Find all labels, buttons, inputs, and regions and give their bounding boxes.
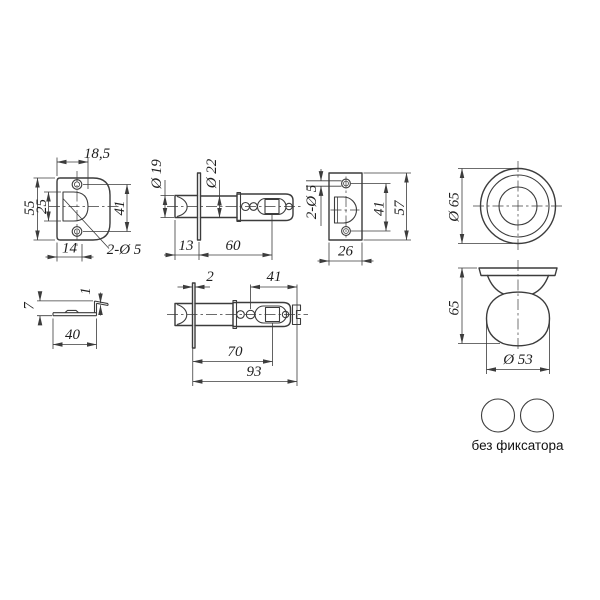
centerlines <box>49 171 119 249</box>
dim-spindle-distance: 70 <box>228 344 244 360</box>
plate-profile <box>53 301 108 316</box>
knob-symbol-left <box>482 399 515 432</box>
dim-plate-thickness: 2 <box>206 269 214 285</box>
faceplate-edge <box>193 283 196 348</box>
dim-barrel-diameter: Ø 22 <box>204 158 220 189</box>
extension-lines <box>458 169 513 244</box>
dim-hole-spacing: 41 <box>112 201 128 216</box>
faceplate-edge <box>198 173 201 240</box>
latch-short-view: Ø 19 Ø 22 13 60 <box>149 158 301 260</box>
dim-lip-thickness: 1 <box>78 287 94 295</box>
variant-note: без фиксатора <box>472 399 564 453</box>
dim-top-width: 18,5 <box>84 146 111 162</box>
dim-cutout-height: 25 <box>34 199 50 215</box>
dim-ball-diameter: Ø 53 <box>502 352 533 368</box>
dim-hole-spacing: 41 <box>372 201 388 216</box>
latch-full-view: 2 41 70 93 <box>167 269 308 386</box>
housing-clip <box>237 193 241 222</box>
variant-caption: без фиксатора <box>472 438 564 453</box>
neck-right <box>533 276 549 295</box>
faceplate-outline <box>57 178 110 240</box>
dim-bottom-width: 14 <box>62 241 78 257</box>
faceplate-edge-view: 7 1 40 <box>22 287 109 349</box>
knob-side-view: 65 Ø 53 <box>447 260 558 374</box>
dim-holes-note: 2-Ø 5 <box>304 184 320 219</box>
dim-head-length: 13 <box>179 238 194 254</box>
technical-drawing: 18,5 55 25 41 14 2-Ø 5 Ø 19 Ø 22 13 60 <box>0 0 600 600</box>
dim-total-length: 93 <box>247 364 262 380</box>
strike-plate-view: 2-Ø 5 41 57 26 <box>304 169 411 266</box>
dim-width: 26 <box>338 244 354 260</box>
extension-lines <box>306 173 411 266</box>
dim-height: 65 <box>447 300 463 316</box>
knob-front-view: Ø 65 <box>447 161 564 251</box>
dim-holes-note: 2-Ø 5 <box>107 242 142 258</box>
dim-width: 40 <box>65 327 81 343</box>
dim-barrel-length: 60 <box>226 238 242 254</box>
drawing-page: 18,5 55 25 41 14 2-Ø 5 Ø 19 Ø 22 13 60 <box>0 0 600 600</box>
dim-diameter: Ø 65 <box>447 192 463 223</box>
knob-symbol-right <box>521 399 554 432</box>
faceplate-front-view: 18,5 55 25 41 14 2-Ø 5 <box>22 146 142 262</box>
dim-height: 57 <box>392 199 408 216</box>
extension-lines <box>193 285 297 387</box>
neck-left <box>488 276 504 295</box>
dim-head-diameter: Ø 19 <box>149 159 165 190</box>
dim-rear-spacing: 41 <box>267 269 282 285</box>
dim-height: 7 <box>22 301 38 310</box>
